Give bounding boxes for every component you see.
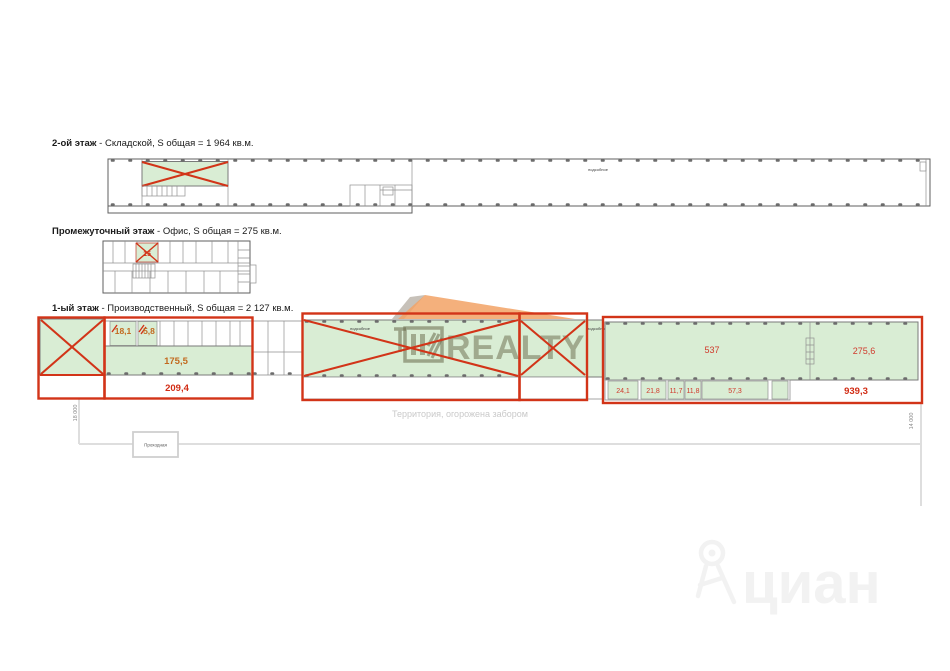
area-sum-209-4: 209,4 <box>165 383 189 394</box>
checkpoint-label: Проходная <box>144 443 167 448</box>
floor1-left-section: 18,1 5,8 175,5 <box>105 321 252 375</box>
plans-canvas: подсобное 15 <box>0 0 950 671</box>
floor1-small-rooms: 24,1 21,8 11,7 11,8 57,3 <box>605 380 790 400</box>
area-275-6: 275,6 <box>853 346 876 356</box>
area-175-5: 175,5 <box>164 356 188 367</box>
area-11-7: 11,7 <box>669 388 682 395</box>
plan-mezzanine: 15 <box>103 241 256 293</box>
area-57-3: 57,3 <box>728 388 742 395</box>
checkpoint-box: Проходная <box>133 432 178 457</box>
floor2-stairs <box>142 186 185 196</box>
area-24-1: 24,1 <box>616 388 630 395</box>
room-small <box>772 381 788 399</box>
area-537: 537 <box>704 345 719 355</box>
area-5-8: 5,8 <box>143 326 155 336</box>
realty-watermark-text: REALTY <box>446 329 585 367</box>
dimension-right: 14 000 <box>909 413 915 430</box>
site-lines: 18 000 14 000 Территория, огорожена забо… <box>73 398 921 506</box>
cian-watermark-text: циан <box>742 551 881 616</box>
roof-watermark <box>398 295 575 319</box>
dimension-left: 18 000 <box>73 405 79 422</box>
floor1-utility-label: подсобное <box>350 326 371 331</box>
cian-watermark: циан <box>698 542 881 616</box>
floor2-annex <box>350 185 412 206</box>
territory-label: Территория, огорожена забором <box>392 409 528 419</box>
floor1-right-section: 537 275,6 24,1 21,8 11,7 11,8 57,3 <box>605 322 918 400</box>
floor2-utility-label: подсобное <box>588 167 609 172</box>
area-sum-939-3: 939,3 <box>844 386 868 397</box>
floor-plan-document: 2-ой этаж - Складской, S общая = 1 964 к… <box>0 0 950 671</box>
area-21-8: 21,8 <box>646 388 660 395</box>
plan-floor2: подсобное <box>108 159 930 213</box>
floor1-middle-gap <box>252 321 302 375</box>
mezzanine-room-area: 15 <box>143 251 151 258</box>
area-18-1: 18,1 <box>115 326 132 336</box>
area-11-8: 11,8 <box>686 388 699 395</box>
mezzanine-annex <box>238 250 256 283</box>
